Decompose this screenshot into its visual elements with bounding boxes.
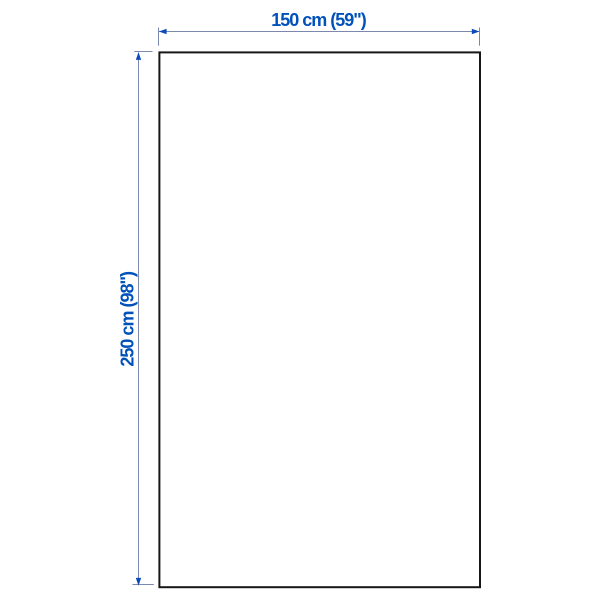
svg-text:150 cm (59"): 150 cm (59") (271, 10, 367, 30)
svg-text:250 cm (98"): 250 cm (98") (118, 271, 138, 367)
